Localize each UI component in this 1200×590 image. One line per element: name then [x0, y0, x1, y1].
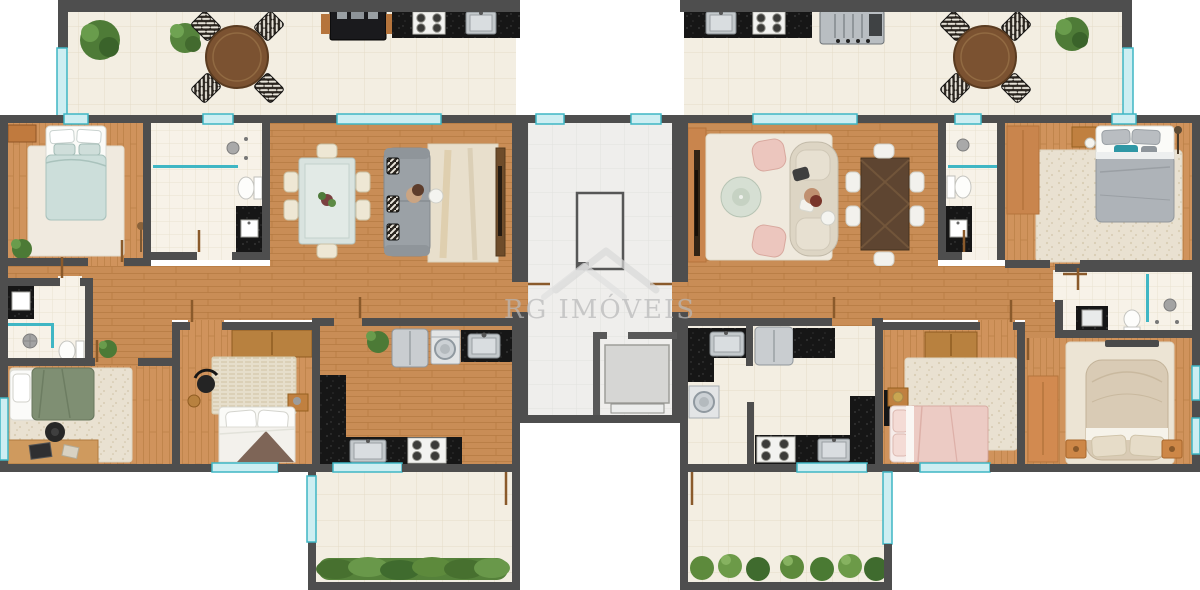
faucet	[832, 438, 836, 442]
wall	[262, 115, 270, 260]
tray	[821, 211, 835, 225]
shower-tap	[244, 137, 248, 141]
plant	[185, 36, 201, 52]
plant	[1072, 32, 1088, 48]
bedroom-2-left	[180, 320, 312, 464]
grill-knob	[866, 39, 870, 43]
wall	[180, 322, 190, 330]
window	[307, 476, 316, 542]
shower-head	[957, 139, 969, 151]
dresser	[8, 125, 36, 142]
door-floor	[1023, 328, 1057, 338]
vanity-sink	[1082, 310, 1102, 326]
bush	[746, 557, 770, 581]
centerpiece-leaf	[328, 199, 336, 207]
faucet	[248, 222, 251, 225]
window	[753, 114, 857, 124]
shower-tap	[244, 156, 248, 160]
burner	[417, 14, 425, 22]
wall	[938, 252, 962, 260]
window	[1123, 48, 1133, 118]
wall	[58, 0, 68, 48]
wall-stub	[747, 402, 754, 464]
shower-glass	[8, 323, 54, 326]
dining-chair	[284, 172, 298, 192]
dining-chair	[874, 144, 894, 158]
wall	[680, 0, 1132, 12]
nightstand-lamp	[893, 392, 903, 402]
pillow	[1132, 129, 1161, 144]
toilet-bowl	[1124, 310, 1140, 328]
living-dining-left	[270, 123, 512, 283]
window	[1192, 418, 1200, 454]
side-table	[188, 395, 200, 407]
laundry-sink-basin	[714, 336, 740, 352]
grill-item	[337, 12, 347, 19]
counter	[688, 358, 714, 382]
dining-chair	[846, 172, 860, 192]
wall	[884, 544, 892, 590]
burner	[431, 452, 440, 461]
window	[0, 398, 8, 460]
kitchen-right	[688, 326, 877, 464]
pink-armchair	[751, 223, 788, 258]
window	[797, 463, 867, 472]
burner	[762, 440, 771, 449]
window	[337, 114, 441, 124]
desk	[8, 440, 98, 464]
bathroom-suite-right	[946, 123, 1002, 260]
zigzag-pillow	[387, 196, 399, 212]
person-hair	[412, 184, 424, 196]
toilet-bowl	[238, 177, 254, 199]
tv-screen	[498, 166, 502, 236]
bedroom-suite-left	[8, 123, 145, 268]
vanity-sink	[12, 292, 30, 310]
faucet	[724, 331, 728, 335]
bush-highlight	[721, 555, 731, 565]
shower-tap	[1155, 320, 1159, 324]
wall	[512, 312, 520, 472]
toilet-tank	[254, 177, 262, 199]
wall	[672, 312, 680, 415]
desk-chair-pad	[51, 428, 59, 436]
shower-glass	[1146, 274, 1149, 322]
dining-chair	[356, 172, 370, 192]
notebook	[62, 445, 79, 459]
laptop	[29, 443, 52, 460]
wall	[0, 358, 95, 366]
dining-chair	[284, 200, 298, 220]
burner	[757, 14, 765, 22]
bathroom-suite-left	[151, 123, 262, 260]
dining-chair	[356, 200, 370, 220]
balcony-right	[688, 472, 888, 582]
nightstand-lamp	[1169, 446, 1175, 452]
balcony-left	[316, 472, 512, 582]
window	[333, 463, 402, 472]
wall	[680, 312, 688, 472]
wall	[512, 115, 520, 282]
burner	[433, 14, 441, 22]
coffee-table-dot	[739, 195, 743, 199]
wall	[1017, 322, 1025, 464]
wall	[402, 464, 520, 472]
wall	[308, 582, 520, 590]
burner	[417, 24, 425, 32]
counter	[850, 396, 877, 464]
pillow	[893, 410, 908, 432]
pink-armchair	[751, 137, 788, 172]
rug-streak	[443, 150, 448, 258]
wall	[680, 472, 688, 590]
wall	[938, 115, 946, 260]
bathroom-social-left	[8, 276, 85, 361]
sink-basin	[710, 15, 732, 31]
gourmet-counter	[684, 8, 812, 38]
pillow	[13, 374, 30, 402]
bedroom-suite-right	[1005, 123, 1192, 268]
dining-chair	[317, 244, 337, 258]
burner	[780, 452, 789, 461]
wall	[520, 415, 680, 423]
wall	[867, 464, 920, 472]
window	[920, 463, 990, 472]
bathroom-3-right	[1053, 270, 1192, 332]
burner	[757, 24, 765, 32]
nightstand-lamp	[1073, 446, 1079, 452]
wall	[680, 582, 892, 590]
pillow	[77, 129, 102, 144]
window	[203, 114, 233, 124]
window	[1192, 366, 1200, 400]
burner	[773, 24, 781, 32]
office-bedroom-left	[8, 366, 172, 464]
burner	[431, 441, 440, 450]
dining-chair	[910, 206, 924, 226]
door-floor	[512, 282, 528, 312]
bench	[1105, 340, 1159, 347]
wall	[58, 0, 520, 12]
door-floor	[605, 330, 630, 339]
plant	[99, 37, 119, 57]
kitchen-sink-basin	[354, 443, 382, 459]
wall	[1005, 260, 1050, 268]
hallway-floor	[688, 266, 1055, 320]
wall	[628, 332, 677, 339]
wall-stub	[746, 326, 753, 366]
shower-head	[227, 142, 239, 154]
wall	[997, 115, 1005, 260]
washer-drum-inner	[699, 397, 709, 407]
pillow	[1129, 435, 1164, 457]
door-floor	[195, 250, 234, 260]
grill-knob	[856, 39, 860, 43]
window	[536, 114, 564, 124]
wall	[0, 464, 212, 472]
plant	[99, 341, 107, 349]
kitchen-sink-basin	[822, 442, 846, 458]
door-floor	[978, 320, 1015, 330]
window	[57, 48, 67, 118]
hallway-floor	[1025, 266, 1055, 338]
rug	[212, 357, 296, 414]
window	[212, 463, 278, 472]
zigzag-pillow	[387, 224, 399, 240]
wall	[1055, 330, 1192, 338]
gourmet-counter	[392, 8, 520, 38]
window	[64, 114, 88, 124]
plant	[81, 24, 99, 42]
sofa-armrest	[384, 148, 430, 159]
bedroom-pink-right	[883, 320, 1017, 464]
wall	[512, 472, 520, 590]
elevator-door	[611, 404, 664, 413]
washer-drum-inner	[440, 344, 450, 354]
wall	[0, 278, 60, 286]
faucet	[482, 333, 487, 338]
grill-item	[351, 12, 364, 19]
nightstand-lamp	[293, 397, 301, 405]
faucet	[957, 222, 960, 225]
laundry-sink-basin	[472, 338, 496, 354]
door-floor	[830, 316, 874, 326]
kitchen-left	[320, 326, 512, 464]
wall	[312, 318, 320, 464]
burner	[413, 441, 422, 450]
wall	[593, 332, 600, 415]
counter	[793, 328, 835, 358]
plant	[11, 239, 21, 249]
dining-chair	[910, 172, 924, 192]
wall	[320, 318, 334, 326]
armchair	[197, 375, 215, 393]
sofa-armrest	[384, 245, 430, 256]
door-floor	[672, 282, 688, 312]
floorplan-svg	[0, 0, 1200, 590]
duvet	[1096, 155, 1174, 222]
wall	[593, 332, 607, 339]
wall	[0, 258, 88, 266]
pillow	[79, 144, 100, 155]
wall	[883, 322, 980, 330]
nightstand-lamp	[1085, 138, 1095, 148]
pillow	[893, 434, 908, 456]
grill-side-box	[869, 14, 882, 36]
wall	[278, 464, 333, 472]
bedroom-bottom-right	[1025, 338, 1192, 464]
tv-screen	[695, 170, 698, 236]
wall	[362, 318, 512, 326]
window	[955, 114, 981, 124]
door-floor	[93, 356, 140, 366]
centerpiece-leaf	[318, 192, 326, 200]
sheet-band	[906, 406, 914, 462]
wall	[520, 312, 528, 415]
wall	[85, 278, 93, 366]
round-table	[206, 26, 268, 88]
shower-glass	[948, 165, 997, 168]
shower-glass	[153, 165, 238, 168]
burner	[413, 452, 422, 461]
zigzag-pillow	[387, 158, 399, 174]
wall	[680, 115, 688, 282]
bush	[810, 557, 834, 581]
wall	[1122, 0, 1132, 48]
toilet-bowl	[955, 176, 971, 198]
person-hair	[810, 195, 822, 207]
sink-basin	[470, 15, 492, 31]
grill-knob	[846, 39, 850, 43]
wall	[172, 322, 180, 464]
floor-lamp-head	[1174, 126, 1182, 134]
bush-highlight	[841, 555, 851, 565]
window	[631, 114, 661, 124]
wall	[222, 322, 320, 330]
tray	[429, 189, 443, 203]
pillow	[54, 144, 75, 155]
wall	[875, 318, 883, 464]
pillow	[1091, 435, 1126, 457]
shower-head	[1164, 299, 1176, 311]
pillow	[50, 129, 75, 144]
duvet	[46, 155, 106, 220]
wall	[672, 123, 680, 282]
dining-chair	[846, 206, 860, 226]
grill-knob	[836, 39, 840, 43]
grill-shelf	[321, 14, 330, 34]
burner	[762, 452, 771, 461]
terrace-left	[66, 8, 520, 118]
bush	[690, 556, 714, 580]
toilet-tank	[947, 176, 955, 198]
burner	[780, 440, 789, 449]
living-dining-right	[688, 123, 938, 283]
wall	[143, 252, 197, 260]
hedge-blob	[474, 558, 510, 578]
terrace-right	[684, 5, 1130, 118]
floorplan-image: RG IMÓVEIS	[0, 0, 1200, 590]
round-table	[954, 26, 1016, 88]
window	[883, 472, 892, 544]
grill-item	[368, 12, 378, 19]
wall	[990, 464, 1200, 472]
shower-glass	[51, 323, 54, 348]
dining-chair	[874, 252, 894, 266]
wall	[520, 123, 528, 282]
window	[1112, 114, 1136, 124]
burner	[773, 14, 781, 22]
dining-table	[861, 158, 909, 250]
wall	[1000, 252, 1005, 260]
plant	[170, 24, 184, 38]
dining-chair	[317, 144, 337, 158]
pillow	[1102, 129, 1131, 144]
door-floor	[188, 320, 224, 330]
wall	[688, 318, 832, 326]
wall	[680, 464, 797, 472]
wall	[232, 252, 270, 260]
shower-tap	[1175, 320, 1179, 324]
wall	[143, 115, 151, 258]
elevator-car	[605, 345, 669, 403]
plant	[1056, 19, 1072, 35]
plant	[366, 331, 376, 341]
burner	[433, 24, 441, 32]
faucet	[366, 439, 370, 443]
duvet-edge	[1096, 152, 1174, 159]
bush-highlight	[783, 556, 793, 566]
